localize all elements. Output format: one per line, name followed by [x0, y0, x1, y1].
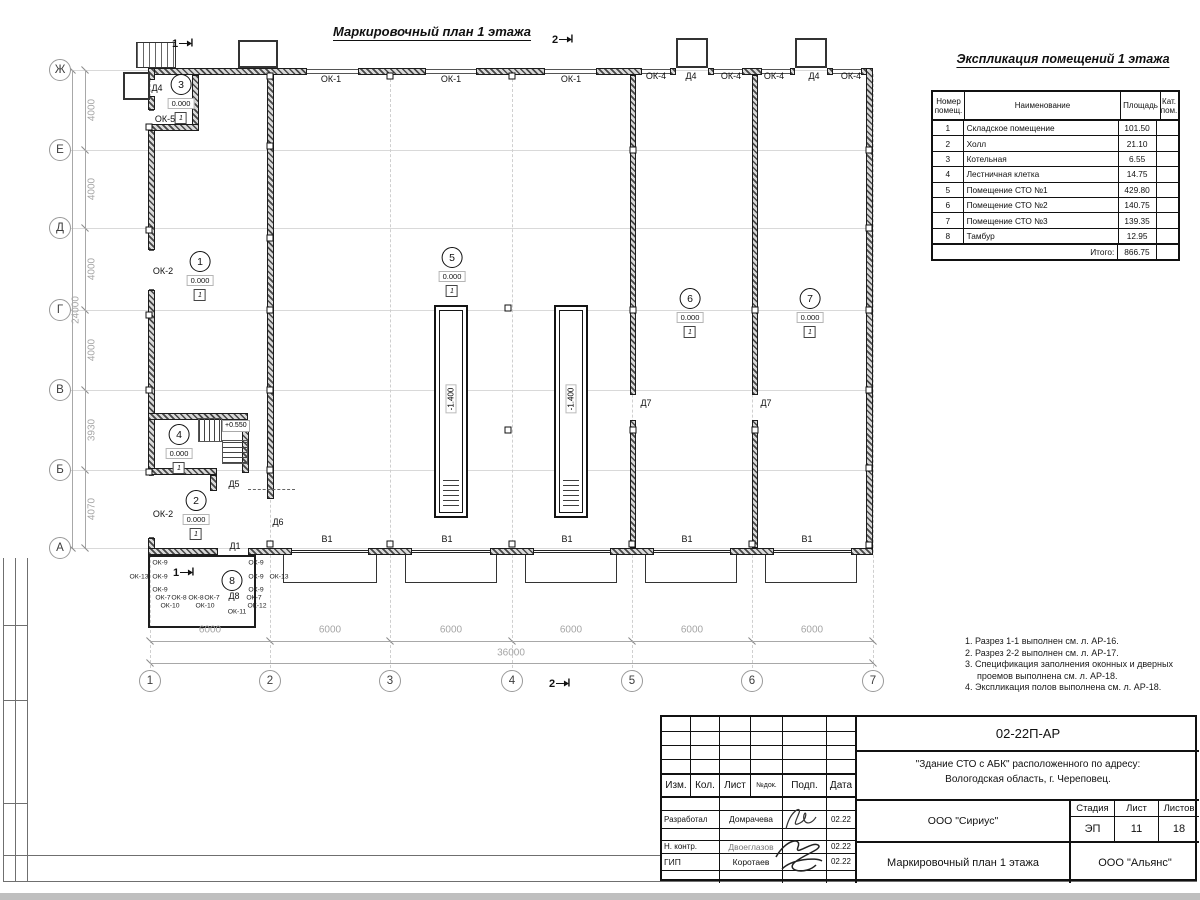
column-marker: [267, 467, 274, 474]
stage-label: Стадия: [1071, 801, 1114, 816]
header-room-number: Номер помещ.: [933, 92, 965, 119]
stair-landing-level: +0.550: [222, 420, 250, 432]
room-number-circle: 2: [186, 490, 207, 511]
mark-label: ОК-13: [129, 574, 148, 581]
wall-segment: [670, 68, 676, 75]
table-body: 1 Складское помещение 101.50 2 Холл 21.1…: [933, 121, 1178, 244]
room-level-label: 0.000: [677, 312, 704, 323]
room-number-circle: 8: [222, 570, 243, 591]
mark-label: ОК-11: [228, 609, 247, 616]
column-marker: [629, 541, 636, 548]
column-marker: [387, 541, 394, 548]
column-marker: [267, 387, 274, 394]
name-developer: Домрачева: [720, 810, 782, 828]
floor-type-icon: 1: [446, 285, 458, 297]
room-marker: 7 0.000 1: [797, 288, 824, 338]
dimension-label: 4000: [87, 178, 98, 200]
wall-segment: [630, 75, 636, 395]
mark-label: ОК-2: [153, 509, 173, 519]
column-marker: [505, 427, 512, 434]
mark-label: ОК-9: [152, 574, 167, 581]
column-marker: [146, 312, 153, 319]
floor-type-icon: 1: [194, 289, 206, 301]
dimension-label: 24000: [71, 296, 82, 324]
mark-label: Д1: [229, 541, 240, 551]
wall-segment: [292, 550, 368, 553]
mark-label: Д4: [685, 71, 696, 81]
wall-segment: [654, 550, 730, 553]
frame-line: [15, 558, 16, 881]
table-row: 8 Тамбур 12.95: [933, 229, 1178, 244]
wall-segment: [851, 548, 873, 555]
cell-name: Лестничная клетка: [964, 167, 1119, 181]
dimension-label: 6000: [440, 625, 462, 636]
sheet-edge-shadow: [0, 893, 1200, 900]
table-total-row: Итого: 866.75: [933, 244, 1178, 259]
table-row: 2 Холл 21.10: [933, 136, 1178, 151]
cell-category: [1157, 136, 1178, 150]
sheets-label: Листов: [1159, 801, 1199, 816]
wall-segment: [525, 555, 617, 583]
date-gip: 02.22: [827, 853, 855, 870]
room-marker: 4 0.000 1: [166, 424, 193, 474]
cell-category: [1157, 183, 1178, 197]
column-marker: [866, 225, 873, 232]
mark-label: ОК-8: [171, 595, 186, 602]
frame-line: [3, 558, 4, 881]
room-level-label: 0.000: [797, 312, 824, 323]
wall-segment: [148, 548, 218, 555]
cell-category: [1157, 198, 1178, 212]
axis-circle: 7: [862, 670, 884, 692]
cell-category: [1157, 121, 1178, 135]
axis-circle: 3: [379, 670, 401, 692]
room-marker: 5 0.000 1: [439, 247, 466, 297]
room-marker: 1 0.000 1: [187, 251, 214, 301]
column-marker: [866, 387, 873, 394]
wall-segment: [238, 40, 278, 68]
mark-label: ОК-9: [152, 587, 167, 594]
section-number: 1: [172, 38, 178, 50]
cell-area: 6.55: [1119, 152, 1157, 166]
pit-level-label: -1.400: [446, 385, 457, 414]
gridline: [390, 74, 391, 668]
floor-type-icon: 1: [175, 112, 187, 124]
wall-segment: [795, 38, 827, 68]
drawing-sheet: { "sheet": { "plan_title": "Маркировочны…: [0, 0, 1200, 900]
frame-line: [27, 558, 28, 881]
frame-line: [3, 700, 28, 701]
role-gip: ГИП: [664, 853, 719, 870]
column-marker: [387, 73, 394, 80]
column-marker: [267, 143, 274, 150]
cell-name: Помещение СТО №2: [964, 198, 1119, 212]
dimension-label: 4000: [87, 99, 98, 121]
project-line2: Вологодская область, г. Череповец.: [857, 769, 1199, 789]
gridline: [71, 150, 871, 151]
section-arrow-icon: [559, 34, 574, 43]
mark-label: Д5: [228, 479, 239, 489]
mark-label: ОК-7: [246, 595, 261, 602]
axis-circle: Е: [49, 139, 71, 161]
mark-label: ОК-1: [321, 74, 341, 84]
mark-label: Д4: [151, 83, 162, 93]
cell-category: [1157, 167, 1178, 181]
wall-segment: [742, 68, 762, 75]
room-level-label: 0.000: [166, 448, 193, 459]
wall-segment: [267, 75, 274, 499]
gridline: [512, 74, 513, 668]
room-number-circle: 6: [680, 288, 701, 309]
cell-room-number: 3: [933, 152, 964, 166]
frame-line: [3, 855, 660, 856]
floor-type-icon: 1: [190, 528, 202, 540]
wall-segment: [730, 548, 774, 555]
column-marker: [146, 227, 153, 234]
axis-circle: А: [49, 537, 71, 559]
room-marker: 3 0.000 1: [168, 74, 195, 124]
cell-area: 14.75: [1119, 167, 1157, 181]
note-item: 2. Разрез 2-2 выполнен см. л. АР-17.: [965, 648, 1200, 660]
notes-list: 1. Разрез 1-1 выполнен см. л. АР-16.2. Р…: [965, 636, 1200, 694]
section-mark: 1: [172, 38, 194, 50]
gridline: [71, 390, 871, 391]
section-mark: 1: [173, 567, 195, 579]
column-marker: [752, 307, 759, 314]
axis-circle: 6: [741, 670, 763, 692]
mark-label: Д4: [808, 71, 819, 81]
column-marker: [749, 541, 756, 548]
title-block: Изм. Кол. Лист №док. Подп. Дата Разработ…: [660, 715, 1197, 881]
wall-segment: [248, 548, 292, 555]
dimension-label: 6000: [560, 625, 582, 636]
table-row: 6 Помещение СТО №2 140.75: [933, 198, 1178, 213]
col-kol: Кол.: [691, 775, 719, 796]
column-marker: [146, 124, 153, 131]
section-arrow-icon: [180, 567, 195, 576]
cell-category: [1157, 152, 1178, 166]
section-number: 2: [549, 678, 555, 690]
cell-category: [1157, 229, 1178, 243]
mark-label: В1: [561, 534, 572, 544]
col-izm: Изм.: [662, 775, 690, 796]
cell-area: 12.95: [1119, 229, 1157, 243]
wall-segment: [123, 72, 150, 100]
mark-label: ОК-9: [248, 587, 263, 594]
mark-label: ОК-1: [441, 74, 461, 84]
total-spacer: [933, 245, 963, 259]
axis-circle: Ж: [49, 59, 71, 81]
cell-room-number: 2: [933, 136, 964, 150]
pit-ladder: [443, 480, 459, 507]
date-ncontrol: 02.22: [827, 840, 855, 853]
drawing-title: Маркировочный план 1 этажа: [857, 843, 1069, 883]
wall-segment: [210, 475, 217, 491]
mark-label: Д7: [760, 398, 771, 408]
column-marker: [267, 541, 274, 548]
cell-room-number: 8: [933, 229, 964, 243]
axis-circle: 4: [501, 670, 523, 692]
section-arrow-icon: [556, 678, 571, 687]
wall-segment: [490, 548, 534, 555]
axis-circle: 2: [259, 670, 281, 692]
table-row: 5 Помещение СТО №1 429.80: [933, 183, 1178, 198]
column-marker: [866, 147, 873, 154]
total-value: 866.75: [1118, 245, 1156, 259]
wall-segment: [774, 550, 851, 553]
axis-circle: Б: [49, 459, 71, 481]
column-marker: [146, 469, 153, 476]
date-developer: 02.22: [827, 810, 855, 828]
wall-segment: [534, 550, 610, 553]
cell-name: Помещение СТО №1: [964, 183, 1119, 197]
inspection-pit: -1.400: [434, 305, 468, 518]
cell-category: [1157, 213, 1178, 227]
cell-room-number: 5: [933, 183, 964, 197]
wall-segment: [248, 489, 295, 491]
mark-label: ОК-9: [152, 560, 167, 567]
note-item: 4. Экспликация полов выполнена см. л. АР…: [965, 682, 1200, 694]
header-name: Наименование: [965, 92, 1121, 119]
section-arrow-icon: [179, 38, 194, 47]
cell-room-number: 1: [933, 121, 964, 135]
stair-flight-lower: [222, 440, 248, 464]
cell-room-number: 6: [933, 198, 964, 212]
section-number: 1: [173, 567, 179, 579]
column-marker: [509, 73, 516, 80]
stage-value: ЭП: [1071, 817, 1114, 841]
room-number-circle: 3: [171, 74, 192, 95]
room-number-circle: 4: [169, 424, 190, 445]
pit-level-label: -1.400: [566, 385, 577, 414]
axis-circle: В: [49, 379, 71, 401]
room-number-circle: 5: [442, 247, 463, 268]
wall-segment: [150, 663, 873, 664]
table-header-row: Номер помещ. Наименование Площадь Кат. п…: [933, 92, 1178, 121]
mark-label: ОК-12: [247, 603, 266, 610]
table-row: 1 Складское помещение 101.50: [933, 121, 1178, 136]
mark-label: Д8: [228, 591, 239, 601]
room-number-circle: 1: [190, 251, 211, 272]
org-customer: ООО "Альянс": [1071, 843, 1199, 883]
section-mark: 2: [549, 678, 571, 690]
cell-area: 101.50: [1119, 121, 1157, 135]
axis-circle: 1: [139, 670, 161, 692]
column-marker: [866, 307, 873, 314]
wall-segment: [752, 420, 758, 548]
axis-circle: 5: [621, 670, 643, 692]
column-marker: [866, 542, 873, 549]
wall-segment: [752, 75, 758, 395]
table-row: 4 Лестничная клетка 14.75: [933, 167, 1178, 182]
room-marker: 6 0.000 1: [677, 288, 704, 338]
mark-label: ОК-13: [269, 574, 288, 581]
mark-label: ОК-4: [646, 71, 666, 81]
wall-segment: [412, 550, 490, 553]
col-data: Дата: [827, 775, 855, 796]
floor-type-icon: 1: [173, 462, 185, 474]
cell-room-number: 4: [933, 167, 964, 181]
column-marker: [630, 307, 637, 314]
cell-name: Помещение СТО №3: [964, 213, 1119, 227]
org-designer: ООО "Сириус": [857, 801, 1069, 841]
wall-segment: [596, 68, 642, 75]
dimension-label: 36000: [497, 648, 525, 659]
dimension-label: 4070: [87, 498, 98, 520]
dimension-label: 3930: [87, 419, 98, 441]
mark-label: В1: [681, 534, 692, 544]
room-level-label: 0.000: [187, 275, 214, 286]
section-mark: 2: [552, 34, 574, 46]
table-row: 7 Помещение СТО №3 139.35: [933, 213, 1178, 228]
dimension-label: 6000: [199, 625, 221, 636]
mark-label: ОК-8: [188, 595, 203, 602]
section-number: 2: [552, 34, 558, 46]
doc-number: 02-22П-АР: [857, 717, 1199, 750]
room-marker: 8: [222, 570, 243, 591]
room-marker: 2 0.000 1: [183, 490, 210, 540]
wall-segment: [148, 124, 199, 131]
total-label: Итого:: [963, 245, 1119, 259]
column-marker: [267, 73, 274, 80]
column-marker: [267, 307, 274, 314]
mark-label: В1: [801, 534, 812, 544]
axis-circle: Д: [49, 217, 71, 239]
role-developer: Разработал: [664, 810, 719, 828]
cell-area: 429.80: [1119, 183, 1157, 197]
signature-developer: [780, 801, 828, 837]
mark-label: ОК-2: [153, 266, 173, 276]
col-ndok: №док.: [751, 775, 782, 796]
dimension-label: 4000: [87, 339, 98, 361]
stair-flight-upper: [198, 418, 222, 442]
wall-segment: [368, 548, 412, 555]
wall-segment: [149, 475, 154, 538]
signature-gip: [772, 835, 830, 881]
column-marker: [267, 235, 274, 242]
col-list: Лист: [720, 775, 750, 796]
mark-label: Д7: [640, 398, 651, 408]
wall-segment: [765, 555, 857, 583]
room-level-label: 0.000: [183, 514, 210, 525]
wall-segment: [150, 641, 873, 642]
wall-segment: [136, 42, 176, 68]
dimension-label: 6000: [801, 625, 823, 636]
dimension-label: 6000: [681, 625, 703, 636]
axis-circle: Г: [49, 299, 71, 321]
gridline: [873, 74, 874, 668]
explication-table: Номер помещ. Наименование Площадь Кат. п…: [931, 90, 1180, 261]
dimension-label: 4000: [87, 258, 98, 280]
mark-label: В1: [441, 534, 452, 544]
wall-segment: [405, 555, 497, 583]
column-marker: [146, 387, 153, 394]
column-marker: [505, 305, 512, 312]
sheets-total: 18: [1159, 817, 1199, 841]
floor-type-icon: 1: [684, 326, 696, 338]
cell-name: Холл: [964, 136, 1119, 150]
mark-label: ОК-4: [841, 71, 861, 81]
mark-label: ОК-10: [160, 603, 179, 610]
mark-label: ОК-9: [248, 574, 263, 581]
wall-segment: [85, 70, 86, 548]
floor-type-icon: 1: [804, 326, 816, 338]
room-number-circle: 7: [800, 288, 821, 309]
mark-label: ОК-1: [561, 74, 581, 84]
col-podp: Подп.: [783, 775, 826, 796]
column-marker: [509, 541, 516, 548]
frame-line: [3, 625, 28, 626]
wall-segment: [610, 548, 654, 555]
room-level-label: 0.000: [168, 98, 195, 109]
note-item: 1. Разрез 1-1 выполнен см. л. АР-16.: [965, 636, 1200, 648]
mark-label: Д6: [272, 517, 283, 527]
mark-label: ОК-7: [204, 595, 219, 602]
mark-label: ОК-7: [155, 595, 170, 602]
cell-name: Тамбур: [964, 229, 1119, 243]
cell-area: 140.75: [1119, 198, 1157, 212]
column-marker: [752, 427, 759, 434]
mark-label: В1: [321, 534, 332, 544]
header-category: Кат. пом.: [1161, 92, 1177, 119]
wall-segment: [645, 555, 737, 583]
column-marker: [630, 147, 637, 154]
cell-name: Котельная: [964, 152, 1119, 166]
frame-line: [3, 803, 28, 804]
wall-segment: [790, 68, 795, 75]
mark-label: ОК-9: [248, 560, 263, 567]
table-row: 3 Котельная 6.55: [933, 152, 1178, 167]
staircase: +0.550: [196, 416, 250, 466]
total-category: [1157, 245, 1178, 259]
room-level-label: 0.000: [439, 271, 466, 282]
dimension-label: 6000: [319, 625, 341, 636]
sheet-number: 11: [1115, 817, 1158, 841]
inspection-pit: -1.400: [554, 305, 588, 518]
mark-label: ОК-10: [195, 603, 214, 610]
plan-title: Маркировочный план 1 этажа: [333, 24, 531, 41]
cell-area: 139.35: [1119, 213, 1157, 227]
cell-room-number: 7: [933, 213, 964, 227]
wall-segment: [676, 38, 708, 68]
header-area: Площадь: [1121, 92, 1161, 119]
cell-name: Складское помещение: [964, 121, 1119, 135]
mark-label: ОК-4: [764, 71, 784, 81]
wall-segment: [630, 420, 636, 548]
mark-label: ОК-4: [721, 71, 741, 81]
gridline: [71, 228, 871, 229]
column-marker: [630, 427, 637, 434]
note-item: 3. Спецификация заполнения оконных и две…: [965, 659, 1200, 682]
sheet-label: Лист: [1115, 801, 1158, 816]
wall-segment: [283, 555, 377, 583]
explication-title: Экспликация помещений 1 этажа: [956, 52, 1169, 68]
role-ncontrol: Н. контр.: [664, 840, 719, 853]
pit-ladder: [563, 480, 579, 507]
cell-area: 21.10: [1119, 136, 1157, 150]
column-marker: [866, 465, 873, 472]
